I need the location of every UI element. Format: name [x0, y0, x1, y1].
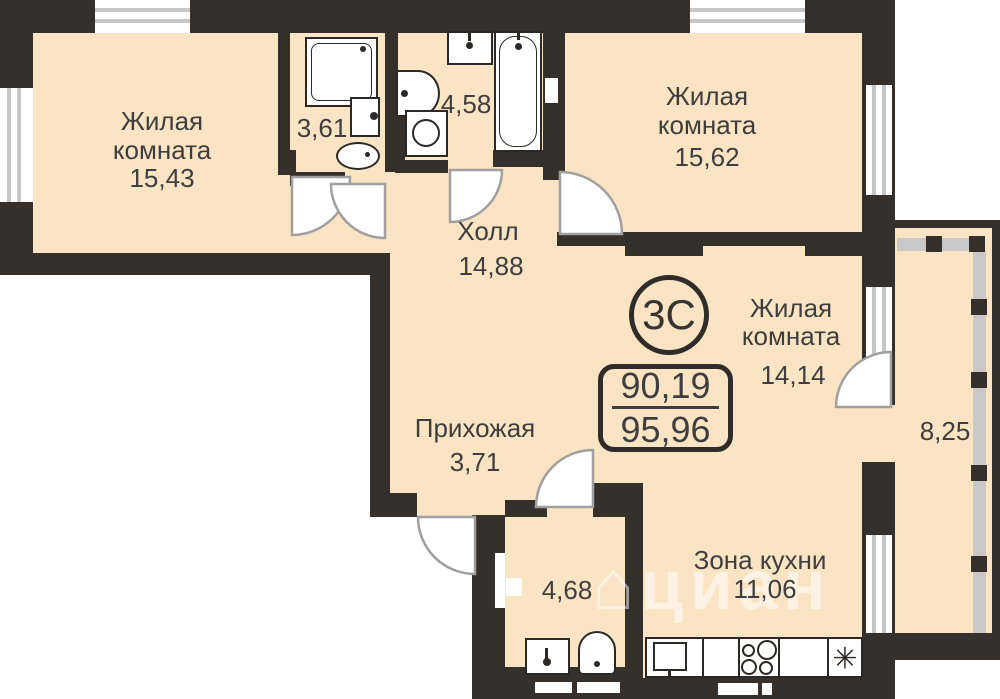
room-area: 4,58 [441, 90, 492, 118]
room-area: 15,43 [129, 164, 194, 192]
wall-bath2-right [543, 33, 565, 180]
bathtub-tap [517, 31, 520, 40]
window-frame [690, 19, 805, 23]
window [866, 85, 892, 195]
room-label: комната [658, 111, 756, 139]
badge-label: 3С [642, 291, 696, 339]
sink-tap [468, 31, 471, 41]
window-frame [95, 8, 190, 12]
wall-notch [545, 78, 558, 103]
window-frame [882, 535, 886, 633]
bathtub-tap [515, 43, 522, 50]
area-value-main: 90,19 [612, 366, 718, 409]
window-frame [882, 287, 886, 405]
wall-wc-top-left [505, 500, 547, 517]
sink-tap [466, 42, 473, 49]
toilet [336, 142, 380, 170]
bathtub-inner [499, 36, 537, 147]
room-label: Прихожая [415, 414, 535, 442]
window-frame [690, 8, 805, 12]
wall-right-column-low [862, 660, 895, 678]
window-frame [872, 85, 876, 195]
vent-gap [762, 683, 772, 695]
glazing-post [969, 236, 985, 252]
balcony-door-opening [862, 405, 895, 462]
room-label: Жилая [666, 82, 748, 110]
stove-burner [742, 644, 755, 657]
kitchen-counter [778, 637, 829, 678]
total-area-box: 90,19 95,96 [598, 364, 733, 452]
window [866, 287, 892, 405]
window [866, 535, 892, 633]
window [690, 0, 805, 33]
wall-balcony-top [893, 220, 1000, 228]
toilet [578, 631, 616, 675]
room-label: комната [113, 136, 211, 164]
room-area: 3,61 [297, 114, 348, 142]
wall-balcony-bottom [893, 633, 1000, 660]
window-frame [17, 88, 21, 202]
kitchen-sink-tap [668, 669, 671, 679]
wall-room2-bottom [557, 232, 862, 246]
washing-machine-drum [412, 119, 440, 147]
kitchen-counter [702, 637, 740, 678]
window-frame [882, 85, 886, 195]
room-label: Жилая [750, 294, 832, 322]
sink-tap [401, 90, 408, 97]
apartment-type-badge: 3С [629, 275, 709, 355]
wall-room1-bath [278, 33, 290, 150]
stove-burner [741, 659, 757, 675]
kitchen-sink [653, 642, 687, 671]
room-label: Жилая [121, 107, 203, 135]
stove-burner [759, 661, 773, 675]
door-arc [418, 517, 475, 574]
glazing-post [971, 372, 987, 388]
room-label: Холл [457, 217, 518, 245]
glazing-post [926, 236, 942, 252]
window-frame [872, 287, 876, 405]
stove-burner [757, 640, 777, 660]
room-area: 11,06 [733, 575, 796, 603]
area-value-total: 95,96 [620, 409, 710, 451]
wall-balcony-right [992, 228, 1000, 660]
floor-plan: ✳ ⌂ циан Жилая комната 15,43 3,61 4,58 Ж… [0, 0, 1000, 699]
wall-niche-h [395, 160, 448, 173]
sink-tap [370, 112, 378, 120]
glazing-post [971, 299, 987, 315]
vent-gap [718, 683, 758, 695]
shaft-slit [495, 553, 505, 608]
vent-gap [577, 682, 620, 693]
toilet-flush [365, 152, 370, 157]
window-frame [872, 535, 876, 633]
wall-hall-left [370, 253, 390, 517]
window [95, 0, 190, 33]
toilet-flush [594, 661, 600, 667]
room-area: 8,25 [920, 417, 971, 445]
wall-stub [805, 246, 862, 256]
window-frame [7, 88, 11, 202]
room-label: Зона кухни [694, 546, 827, 574]
room-area: 14,88 [458, 252, 523, 280]
vent-gap [535, 682, 572, 693]
glazing-post [971, 556, 987, 572]
room-label: комната [742, 322, 840, 350]
wall-entry-bottom [370, 493, 417, 517]
room-area: 15,62 [674, 143, 739, 171]
wall-bottom-left [0, 253, 390, 275]
duct [506, 578, 522, 596]
window-frame [95, 19, 190, 23]
glazing-post [971, 465, 987, 481]
fridge-icon: ✳ [832, 642, 857, 677]
shower-drain [360, 46, 366, 52]
room-area: 14,14 [760, 361, 825, 389]
wall-bath1-bottom [290, 172, 345, 186]
sink-tap [543, 658, 551, 666]
room-area: 4,68 [542, 576, 593, 604]
wall-stub [625, 246, 703, 256]
room-area: 3,71 [450, 448, 501, 476]
